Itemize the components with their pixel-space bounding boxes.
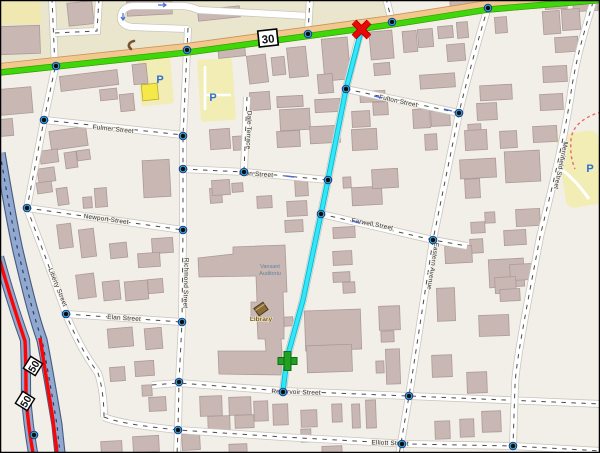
svg-text:Auditoriu: Auditoriu	[259, 271, 281, 277]
svg-text:Vansant: Vansant	[260, 264, 280, 270]
svg-text:30: 30	[261, 33, 275, 46]
svg-text:Library: Library	[250, 316, 273, 323]
svg-text:P: P	[209, 92, 216, 104]
svg-text:Dale Terrace: Dale Terrace	[244, 111, 252, 150]
svg-text:P: P	[156, 74, 163, 86]
svg-text:Richmond Street: Richmond Street	[182, 258, 190, 309]
svg-text:P: P	[586, 163, 593, 175]
